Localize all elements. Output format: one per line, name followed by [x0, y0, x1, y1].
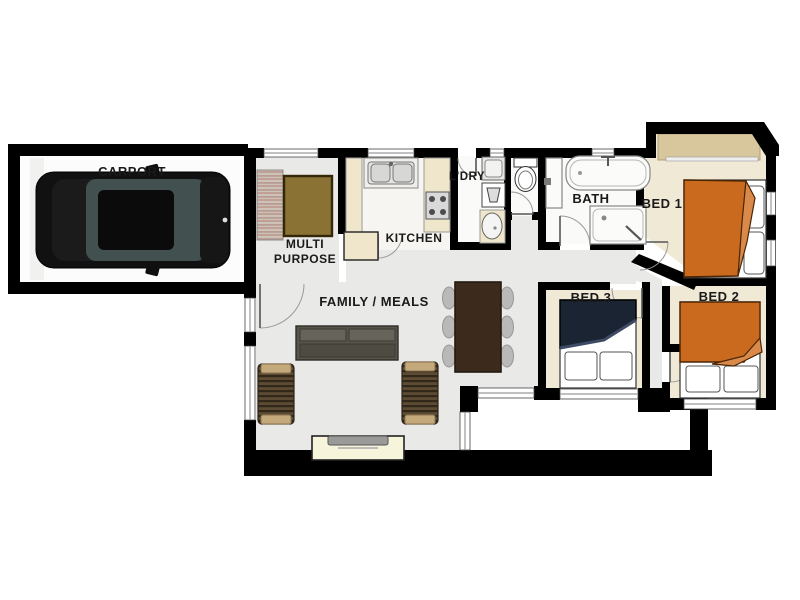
window — [264, 149, 318, 157]
family-meals-label: FAMILY / MEALS — [319, 294, 429, 309]
bed1-blanket — [684, 180, 746, 277]
window — [245, 298, 255, 332]
window — [368, 149, 414, 157]
bed1-bed2-wall — [694, 278, 776, 286]
vanity-tap — [544, 178, 551, 185]
sink-faucet — [389, 162, 393, 166]
window — [560, 389, 638, 399]
bed1-wardrobe — [658, 134, 760, 161]
window — [767, 192, 776, 215]
multi-purpose-label-line1: MULTI — [286, 237, 324, 251]
carport-bottom-wall — [8, 282, 248, 294]
bed3-top-wall — [546, 282, 610, 290]
hall-bed3-wall — [538, 282, 546, 390]
carport-top-wall — [8, 144, 248, 156]
bed3-bed — [560, 300, 636, 388]
kitchen-island-bench — [344, 232, 378, 260]
wc-bath-wall — [538, 158, 546, 250]
carport-label: CARPORT — [98, 164, 166, 179]
left-wall-upper — [244, 148, 256, 284]
floor-plan-canvas: CARPORT MULTI PURPOSE KITCHEN L'DRY BATH… — [0, 0, 800, 600]
pillow — [724, 366, 758, 392]
bed1-top-wall — [646, 122, 754, 134]
shower-drain — [602, 216, 607, 221]
bed2-left-wall — [662, 286, 670, 344]
armchair — [402, 362, 438, 424]
kitchen-bench-left — [346, 158, 362, 234]
car-badge — [223, 218, 228, 223]
pillow — [686, 366, 720, 392]
dining-table — [455, 282, 501, 372]
hall-post — [460, 386, 478, 412]
kitchen-label: KITCHEN — [386, 231, 443, 245]
bath-label: BATH — [572, 191, 609, 206]
wardrobe-sliding-track — [666, 157, 758, 161]
armchair — [258, 364, 294, 424]
laundry-label: L'DRY — [449, 171, 485, 183]
bed1-bed — [684, 180, 766, 278]
pillow — [600, 352, 632, 380]
car-roof — [98, 190, 174, 250]
toilet-cistern — [514, 158, 537, 167]
window — [767, 240, 776, 266]
window — [245, 346, 255, 420]
window — [478, 388, 534, 398]
window — [490, 149, 504, 157]
daybed — [257, 170, 283, 240]
carport-left-wall — [8, 144, 20, 294]
tv — [328, 436, 388, 445]
multi-purpose-label-line2: PURPOSE — [274, 252, 336, 266]
laundry-tub — [482, 213, 502, 239]
right-wall — [766, 150, 776, 192]
window — [684, 399, 756, 409]
floor-plan: CARPORT MULTI PURPOSE KITCHEN L'DRY BATH… — [0, 0, 800, 600]
bed2-label: BED 2 — [699, 289, 740, 304]
multi-purpose-furniture — [257, 170, 332, 240]
bed3-right-wall — [642, 282, 650, 390]
pillow — [565, 352, 597, 380]
window — [460, 412, 470, 450]
stove — [426, 192, 449, 219]
bed2-bed — [680, 302, 762, 398]
rug — [284, 176, 332, 236]
kitchen-left-wall — [338, 158, 346, 234]
wc-fittings — [514, 158, 537, 192]
bed3-label: BED 3 — [571, 290, 612, 305]
car — [36, 163, 230, 276]
laundry-fittings — [480, 157, 505, 243]
bed1-label: BED 1 — [642, 196, 683, 211]
